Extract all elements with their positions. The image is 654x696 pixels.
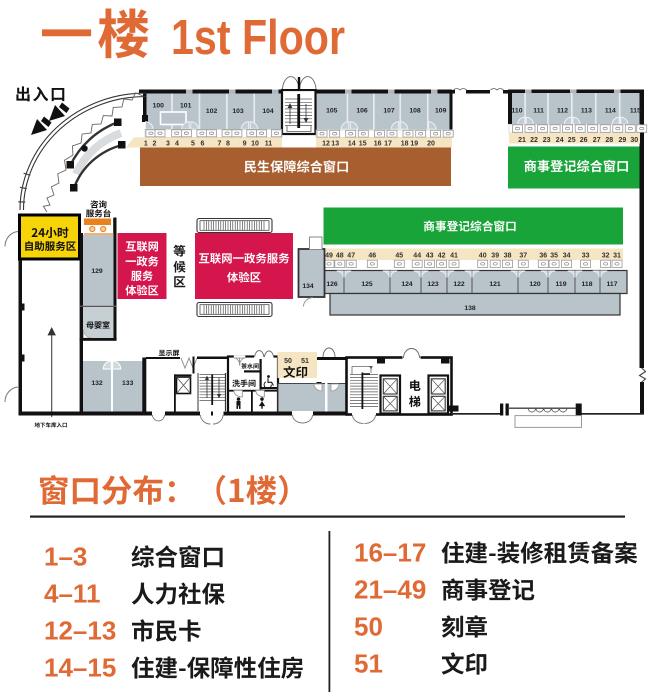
svg-text:37: 37	[519, 253, 527, 260]
svg-text:123: 123	[427, 281, 439, 288]
svg-text:43: 43	[426, 253, 434, 260]
svg-text:126: 126	[326, 281, 338, 288]
svg-text:21: 21	[518, 137, 526, 144]
svg-text:107: 107	[383, 108, 395, 115]
svg-text:31: 31	[613, 253, 621, 260]
svg-text:48: 48	[336, 253, 344, 260]
svg-text:100: 100	[153, 103, 165, 110]
svg-text:3: 3	[166, 140, 170, 147]
svg-text:16–17: 16–17	[354, 538, 426, 568]
svg-text:114: 114	[605, 108, 616, 115]
svg-text:124: 124	[401, 281, 413, 288]
svg-text:105: 105	[326, 108, 338, 115]
svg-text:44: 44	[413, 253, 421, 260]
svg-text:103: 103	[232, 108, 244, 115]
svg-text:29: 29	[619, 137, 627, 144]
svg-text:104: 104	[262, 108, 274, 115]
svg-text:12–13: 12–13	[44, 616, 116, 646]
svg-text:14–15: 14–15	[44, 653, 116, 683]
svg-text:110: 110	[512, 108, 523, 115]
svg-text:138: 138	[464, 305, 476, 312]
svg-text:117: 117	[607, 281, 618, 288]
svg-text:102: 102	[206, 108, 218, 115]
svg-text:133: 133	[122, 380, 134, 387]
svg-text:14: 14	[348, 140, 356, 147]
svg-text:17: 17	[384, 140, 392, 147]
svg-text:42: 42	[438, 253, 446, 260]
svg-text:19: 19	[410, 140, 418, 147]
svg-text:40: 40	[479, 253, 487, 260]
svg-text:113: 113	[581, 108, 592, 115]
svg-text:1: 1	[144, 140, 148, 147]
svg-text:33: 33	[582, 253, 590, 260]
svg-text:4: 4	[175, 140, 179, 147]
svg-text:20: 20	[427, 140, 435, 147]
svg-text:101: 101	[180, 103, 192, 110]
svg-text:118: 118	[582, 281, 593, 288]
svg-text:25: 25	[568, 137, 576, 144]
svg-text:41: 41	[450, 253, 458, 260]
svg-text:22: 22	[530, 137, 538, 144]
svg-text:108: 108	[409, 108, 421, 115]
svg-text:111: 111	[533, 108, 544, 115]
svg-text:2: 2	[152, 140, 156, 147]
svg-text:4–11: 4–11	[44, 579, 100, 609]
svg-text:10: 10	[251, 140, 259, 147]
svg-text:50: 50	[284, 358, 292, 365]
svg-text:109: 109	[435, 108, 447, 115]
svg-text:5: 5	[191, 140, 195, 147]
svg-text:121: 121	[489, 281, 501, 288]
svg-text:129: 129	[91, 268, 103, 275]
svg-text:28: 28	[605, 137, 613, 144]
svg-text:1st Floor: 1st Floor	[171, 11, 345, 65]
svg-text:47: 47	[347, 253, 355, 260]
svg-text:6: 6	[201, 140, 205, 147]
svg-text:46: 46	[368, 253, 376, 260]
svg-text:9: 9	[243, 140, 247, 147]
svg-text:13: 13	[331, 140, 339, 147]
svg-text:119: 119	[556, 281, 567, 288]
svg-text:1–3: 1–3	[44, 542, 87, 572]
svg-text:21–49: 21–49	[354, 575, 426, 605]
svg-text:51: 51	[301, 358, 309, 365]
svg-text:32: 32	[602, 253, 610, 260]
svg-text:120: 120	[529, 281, 541, 288]
svg-text:122: 122	[453, 281, 465, 288]
svg-text:27: 27	[593, 137, 601, 144]
svg-text:8: 8	[226, 140, 230, 147]
svg-text:15: 15	[359, 140, 367, 147]
svg-text:106: 106	[356, 108, 368, 115]
svg-text:26: 26	[580, 137, 588, 144]
svg-text:23: 23	[543, 137, 551, 144]
svg-text:12: 12	[322, 140, 330, 147]
svg-text:16: 16	[374, 140, 382, 147]
svg-text:134: 134	[302, 283, 314, 290]
svg-text:39: 39	[491, 253, 499, 260]
svg-text:49: 49	[325, 253, 333, 260]
svg-text:132: 132	[91, 380, 103, 387]
svg-text:34: 34	[563, 253, 571, 260]
svg-text:51: 51	[354, 649, 383, 679]
svg-text:45: 45	[395, 253, 403, 260]
svg-text:112: 112	[557, 108, 568, 115]
svg-text:24: 24	[556, 137, 564, 144]
svg-text:115: 115	[630, 108, 641, 115]
svg-text:36: 36	[539, 253, 547, 260]
svg-text:125: 125	[361, 281, 373, 288]
svg-text:7: 7	[217, 140, 221, 147]
svg-text:30: 30	[630, 137, 638, 144]
svg-text:11: 11	[265, 140, 273, 147]
svg-text:18: 18	[401, 140, 409, 147]
svg-text:38: 38	[504, 253, 512, 260]
svg-text:50: 50	[354, 612, 383, 642]
svg-text:35: 35	[550, 253, 558, 260]
